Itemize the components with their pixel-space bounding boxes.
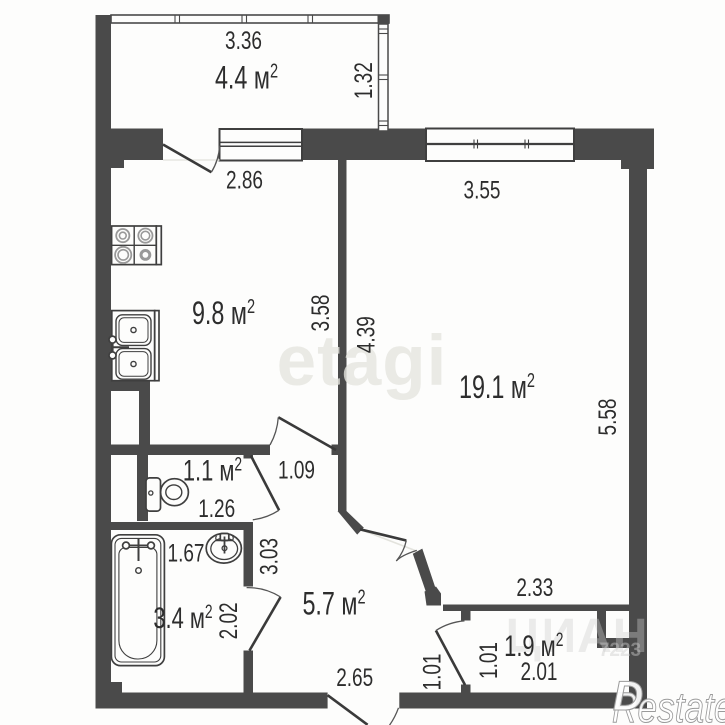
svg-text:2.02: 2.02 (214, 602, 242, 639)
svg-text:3.4 м2: 3.4 м2 (153, 601, 212, 635)
svg-text:2.65: 2.65 (336, 663, 373, 691)
svg-text:5.7 м2: 5.7 м2 (302, 585, 365, 621)
svg-text:7223: 7223 (599, 640, 641, 661)
svg-text:19.1 м2: 19.1 м2 (459, 369, 535, 405)
svg-text:1.32: 1.32 (349, 62, 377, 99)
svg-text:1.01: 1.01 (474, 642, 502, 679)
svg-text:1.67: 1.67 (168, 539, 205, 567)
svg-text:4.4 м2: 4.4 м2 (215, 59, 278, 95)
svg-text:1.26: 1.26 (198, 494, 235, 522)
svg-text:3.55: 3.55 (464, 176, 501, 204)
svg-text:1.09: 1.09 (278, 456, 315, 484)
svg-text:9.8 м2: 9.8 м2 (192, 295, 255, 331)
svg-text:3.58: 3.58 (306, 295, 334, 332)
svg-text:1.01: 1.01 (418, 654, 446, 691)
svg-text:2.33: 2.33 (516, 573, 553, 601)
svg-text:2.86: 2.86 (226, 166, 263, 194)
svg-text:1.9 м2: 1.9 м2 (504, 629, 563, 663)
svg-text:3.03: 3.03 (255, 538, 283, 575)
svg-text:5.58: 5.58 (593, 399, 621, 436)
svg-text:3.36: 3.36 (225, 26, 262, 54)
svg-text:D: D (613, 672, 643, 719)
svg-text:4.39: 4.39 (352, 316, 380, 353)
svg-text:1.1 м2: 1.1 м2 (183, 453, 242, 487)
